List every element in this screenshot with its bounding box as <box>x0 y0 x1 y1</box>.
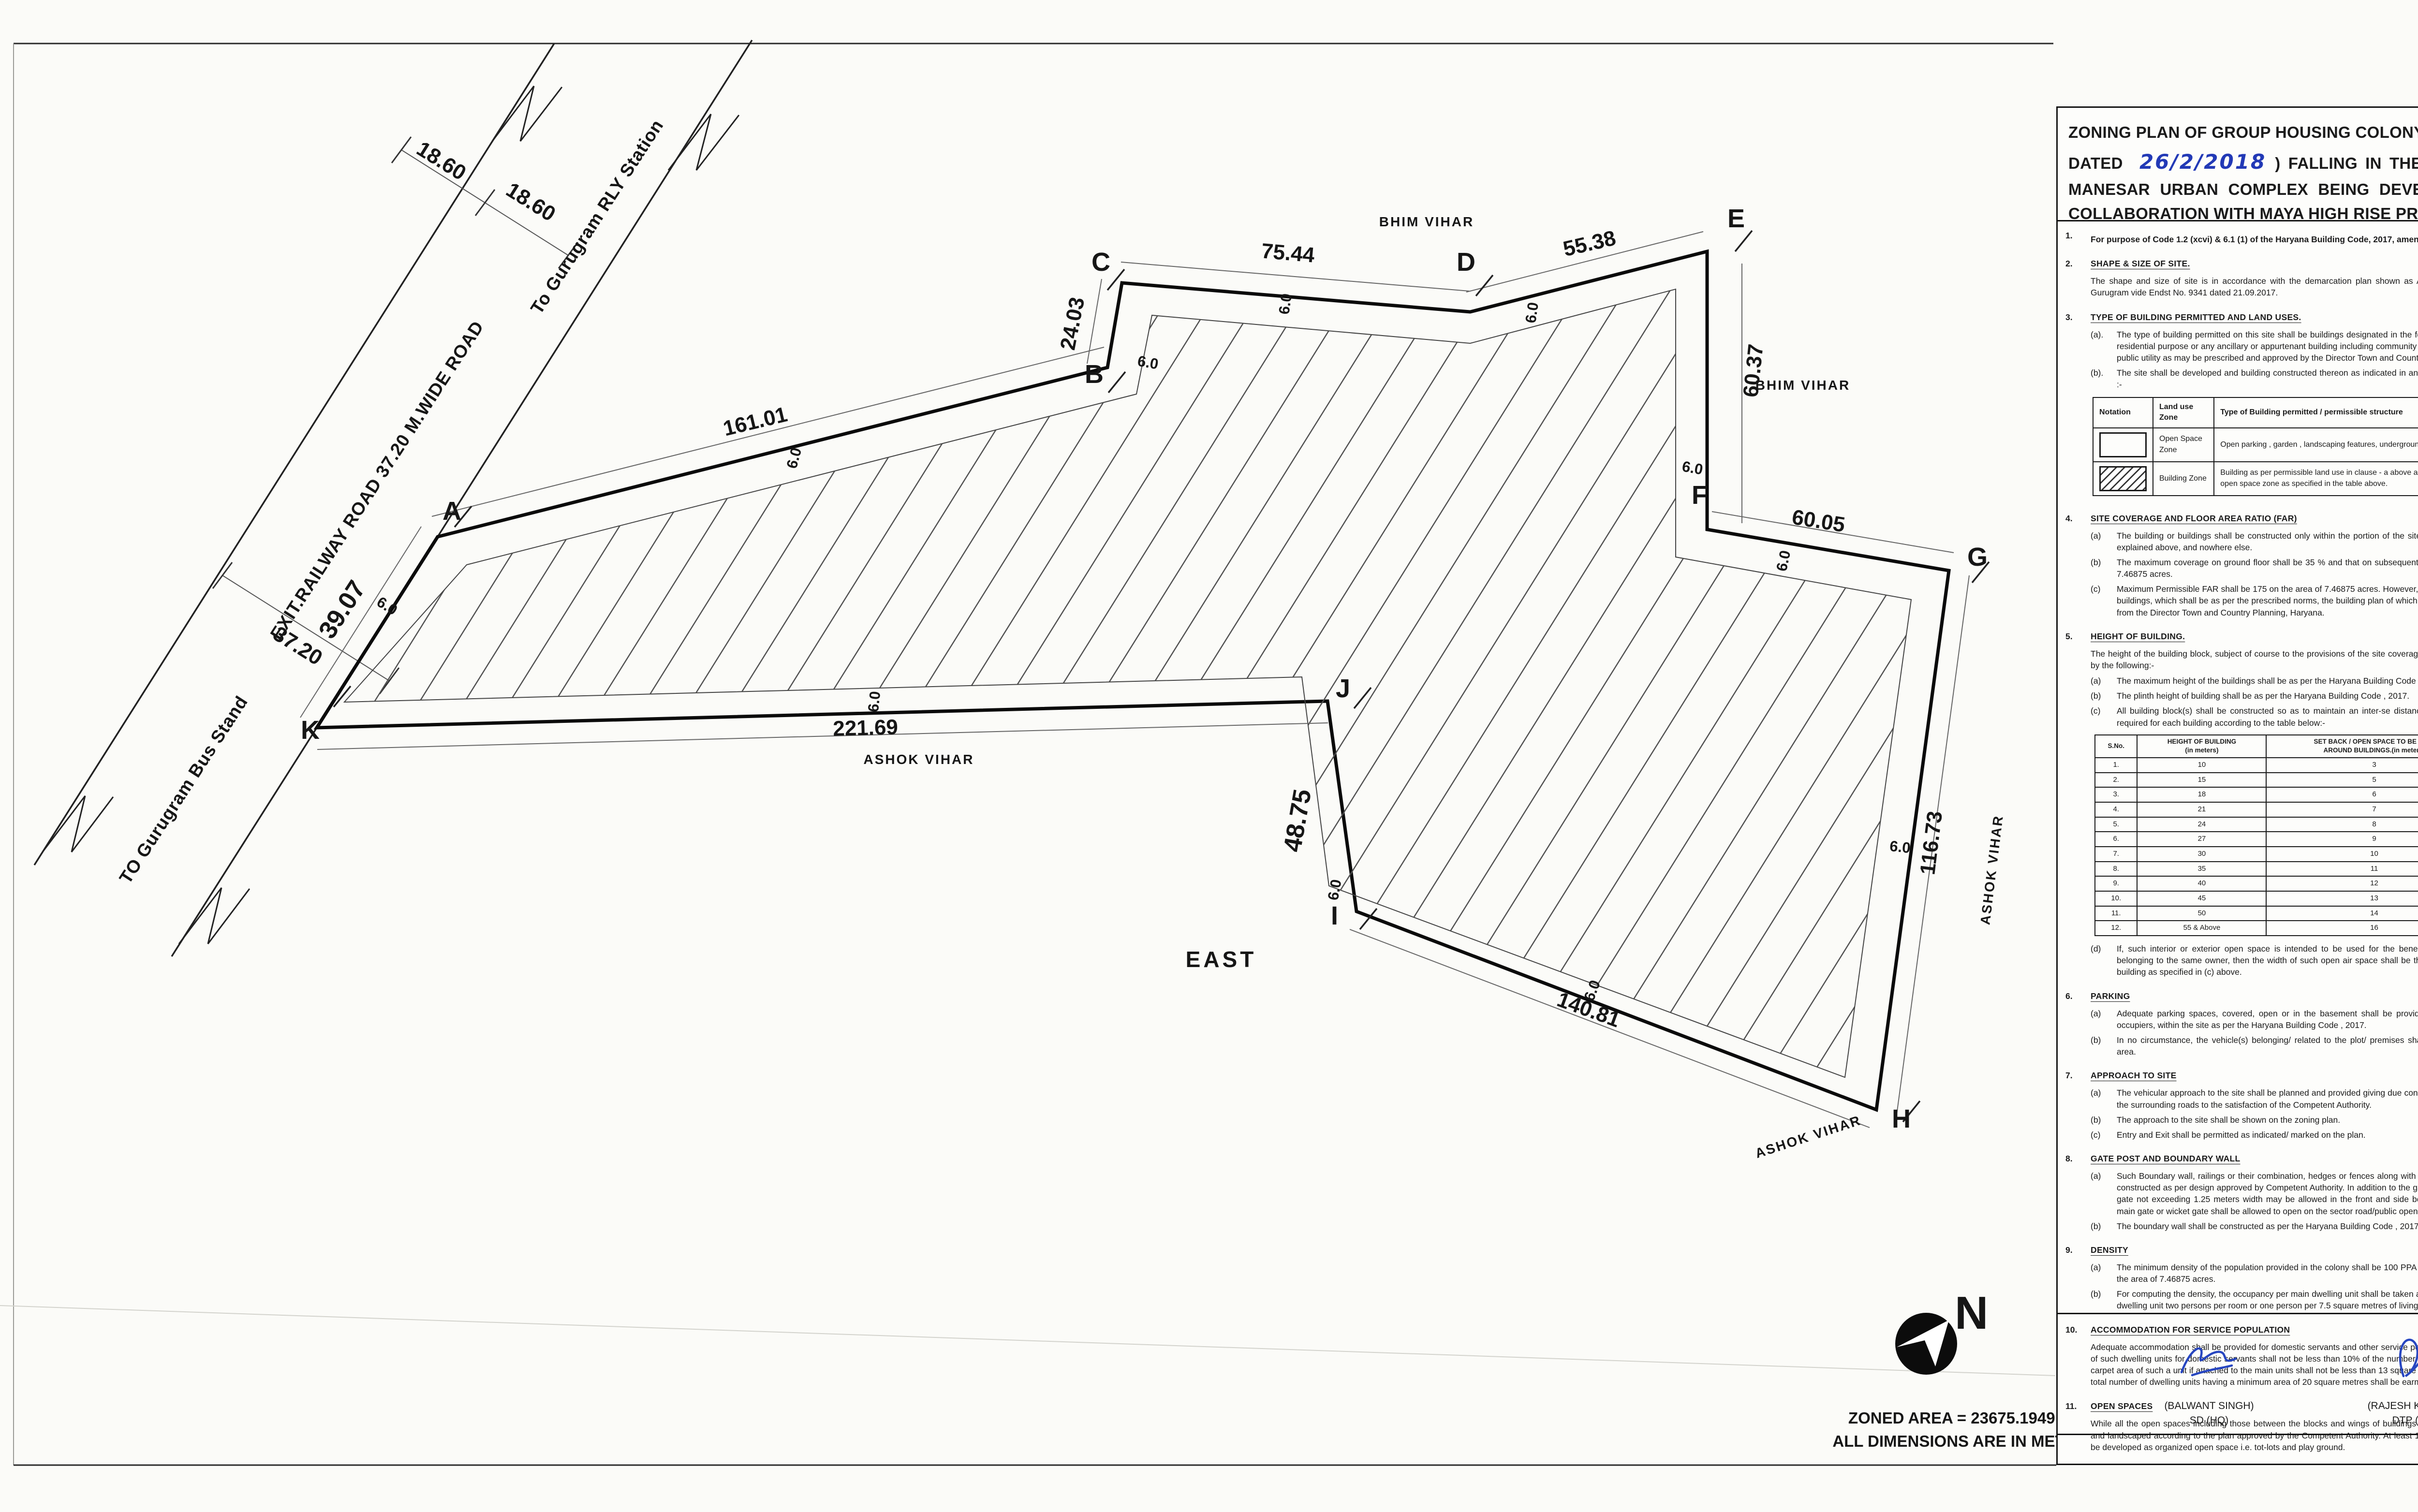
setback-label: 6.0 <box>1773 549 1794 573</box>
signatory-name: (RAJESH KAUSHIK) <box>2337 1400 2418 1412</box>
subitem-label: (b) <box>2091 557 2117 580</box>
subitem-label: (a) <box>2091 1262 2117 1285</box>
clause-number: 9. <box>2065 1244 2091 1315</box>
dim-gh: 116.73 <box>1916 810 1947 876</box>
table-cell: 9 <box>2266 832 2418 847</box>
clause-subitem: (a)Such Boundary wall, railings or their… <box>2091 1170 2418 1217</box>
table-cell: 1. <box>2095 758 2137 773</box>
table-row: 9.4012 <box>2095 876 2418 891</box>
table-header-cell: SET BACK / OPEN SPACE TO BE LEFT AROUND … <box>2266 735 2418 758</box>
subitem-text: The building or buildings shall be const… <box>2117 530 2418 553</box>
table-cell: 30 <box>2137 847 2266 862</box>
signatory-name: (BALWANT SINGH) <box>2132 1400 2286 1412</box>
tick <box>475 190 495 216</box>
subitem-text: The approach to the site shall be shown … <box>2117 1114 2418 1126</box>
table-cell: 27 <box>2137 832 2266 847</box>
setback-label: 6.0 <box>1889 837 1912 856</box>
clause-section: 5.HEIGHT OF BUILDING.The height of the b… <box>2065 631 2418 982</box>
clause-subitem: (a)Adequate parking spaces, covered, ope… <box>2091 1008 2418 1031</box>
clause-heading: DENSITY <box>2091 1244 2418 1256</box>
title-text: ZONING PLAN OF GROUP HOUSING COLONY FOR … <box>2068 123 2418 141</box>
vertex-j: J <box>1336 674 1350 703</box>
setback-label: 6.0 <box>374 593 400 619</box>
clause-subitem: (a).The type of building permitted on th… <box>2091 329 2418 364</box>
subitem-label: (c) <box>2091 705 2117 728</box>
area-label-bhim-vihar-right: BHIM VIHAR <box>1755 378 1850 393</box>
subitem-label: (b) <box>2091 1288 2117 1311</box>
clause-number: 7. <box>2065 1070 2091 1144</box>
clause-heading: APPROACH TO SITE <box>2091 1070 2418 1081</box>
clause-number: 2. <box>2065 258 2091 302</box>
table-cell: 15 <box>2137 773 2266 788</box>
table-cell: 24 <box>2137 817 2266 832</box>
clause-subitem: (b)The plinth height of building shall b… <box>2091 690 2418 702</box>
vertex-i: I <box>1331 901 1338 930</box>
type-cell: Building as per permissible land use in … <box>2214 462 2418 496</box>
vertex-d: D <box>1457 248 1475 277</box>
setback-label: 6.0 <box>1325 878 1345 902</box>
zone-cell: Building Zone <box>2153 462 2214 496</box>
land-use-table: NotationLand use ZoneType of Building pe… <box>2093 397 2418 496</box>
table-cell: 8. <box>2095 862 2137 877</box>
clause-section: 9.DENSITY(a)The minimum density of the p… <box>2065 1244 2418 1315</box>
clause-subitem: (b)The boundary wall shall be constructe… <box>2091 1220 2418 1232</box>
dim-cd: 75.44 <box>1260 239 1315 267</box>
subitem-text: Entry and Exit shall be permitted as ind… <box>2117 1129 2418 1141</box>
table-cell: 5 <box>2266 773 2418 788</box>
dim-fg: 60.05 <box>1790 505 1846 537</box>
vertex-c: C <box>1091 248 1110 277</box>
subitem-label: (b) <box>2091 1220 2117 1232</box>
clauses-column-left: 1.For purpose of Code 1.2 (xcvi) & 6.1 (… <box>2065 230 2418 1466</box>
subitem-label: (a) <box>2091 530 2117 553</box>
clause-body: SHAPE & SIZE OF SITE.The shape and size … <box>2091 258 2418 302</box>
table-row: 3.186 <box>2095 787 2418 802</box>
open-space-swatch <box>2099 432 2147 457</box>
road-label-to-bus-stand: TO Gurugram Bus Stand <box>116 692 252 887</box>
road-edge-left <box>34 44 554 865</box>
vertex-a: A <box>442 497 461 526</box>
site-plan: A B C D E F G H I J K 161.01 24.03 75.44… <box>0 0 2418 1512</box>
subitem-label: (c) <box>2091 1129 2117 1141</box>
road-break-icon <box>43 796 113 852</box>
table-header-cell: HEIGHT OF BUILDING (in meters) <box>2137 735 2266 758</box>
table-row: 8.3511 <box>2095 862 2418 877</box>
setback-label: 6.0 <box>1522 301 1542 324</box>
clause-section: 8.GATE POST AND BOUNDARY WALL(a)Such Bou… <box>2065 1153 2418 1235</box>
north-letter: N <box>1955 1287 1988 1339</box>
subitem-text: The maximum height of the buildings shal… <box>2117 675 2418 687</box>
subitem-label: (a) <box>2091 1008 2117 1031</box>
clause-subitem: (b)The maximum coverage on ground floor … <box>2091 557 2418 580</box>
tick <box>392 137 411 163</box>
clause-section: 7.APPROACH TO SITE(a)The vehicular appro… <box>2065 1070 2418 1144</box>
subitem-text: The vehicular approach to the site shall… <box>2117 1087 2418 1110</box>
clause-section: 1.For purpose of Code 1.2 (xcvi) & 6.1 (… <box>2065 230 2418 249</box>
clause-paragraph: For purpose of Code 1.2 (xcvi) & 6.1 (1)… <box>2091 234 2418 245</box>
notation-cell <box>2093 462 2153 496</box>
setback-label: 6.0 <box>1136 352 1160 373</box>
clause-number: 3. <box>2065 311 2091 504</box>
table-cell: 4. <box>2095 802 2137 817</box>
subitem-text: The type of building permitted on this s… <box>2117 329 2418 364</box>
clause-section: 4.SITE COVERAGE AND FLOOR AREA RATIO (FA… <box>2065 513 2418 622</box>
dim-jk: 221.69 <box>833 715 899 741</box>
table-cell: 50 <box>2137 906 2266 921</box>
clause-subitem: (a)The vehicular approach to the site sh… <box>2091 1087 2418 1110</box>
subitem-label: (d) <box>2091 943 2117 978</box>
subitem-text: The minimum density of the population pr… <box>2117 1262 2418 1285</box>
clause-body: PARKING(a)Adequate parking spaces, cover… <box>2091 990 2418 1061</box>
table-cell: 14 <box>2266 906 2418 921</box>
table-cell: 6 <box>2266 787 2418 802</box>
notation-cell <box>2093 428 2153 462</box>
vertex-e: E <box>1727 204 1745 233</box>
vertex-h: H <box>1892 1104 1911 1133</box>
clause-number: 5. <box>2065 631 2091 982</box>
table-cell: 13 <box>2266 891 2418 906</box>
clause-paragraph: The height of the building block, subjec… <box>2091 648 2418 671</box>
subitem-text: In no circumstance, the vehicle(s) belon… <box>2117 1034 2418 1057</box>
clause-number: 4. <box>2065 513 2091 622</box>
setback-label: 6.0 <box>1275 293 1295 316</box>
subitem-label: (c) <box>2091 583 2117 618</box>
clause-heading: TYPE OF BUILDING PERMITTED AND LAND USES… <box>2091 311 2418 323</box>
signature-stroke <box>2400 1340 2418 1376</box>
table-cell: 35 <box>2137 862 2266 877</box>
clause-heading: PARKING <box>2091 990 2418 1002</box>
dim-road-half-1: 18.60 <box>413 137 470 185</box>
clause-heading: SITE COVERAGE AND FLOOR AREA RATIO (FAR) <box>2091 513 2418 524</box>
table-cell: 12. <box>2095 921 2137 936</box>
signatory-role: DTP (HQ) <box>2337 1415 2418 1426</box>
subitem-text: Adequate parking spaces, covered, open o… <box>2117 1008 2418 1031</box>
subitem-text: The maximum coverage on ground floor sha… <box>2117 557 2418 580</box>
table-header-cell: Type of Building permitted / permissible… <box>2214 397 2418 427</box>
signature-stroke <box>2182 1349 2236 1375</box>
table-row: 4.217 <box>2095 802 2418 817</box>
dim-ka: 39.07 <box>313 575 371 644</box>
drawing-title: ZONING PLAN OF GROUP HOUSING COLONY FOR … <box>2058 108 2418 221</box>
table-cell: 6. <box>2095 832 2137 847</box>
clause-section: 3.TYPE OF BUILDING PERMITTED AND LAND US… <box>2065 311 2418 504</box>
clause-number: 6. <box>2065 990 2091 1061</box>
clause-subitem: (c)All building block(s) shall be constr… <box>2091 705 2418 728</box>
dim-bc: 24.03 <box>1056 295 1089 352</box>
table-cell: 3. <box>2095 787 2137 802</box>
table-row: 2.155 <box>2095 773 2418 788</box>
signature-strip: (BALWANT SINGH)SD (HQ)(RAJESH KAUSHIK)DT… <box>2058 1313 2418 1435</box>
table-header-cell: Notation <box>2093 397 2153 427</box>
clause-number: 1. <box>2065 230 2091 249</box>
licence-date-handwritten: 26/2/2018 <box>2131 150 2275 174</box>
subitem-text: For computing the density, the occupancy… <box>2117 1288 2418 1311</box>
building-zone-swatch <box>2099 466 2147 491</box>
table-cell: 8 <box>2266 817 2418 832</box>
table-cell: 10 <box>2266 847 2418 862</box>
table-header-row: NotationLand use ZoneType of Building pe… <box>2093 397 2418 427</box>
table-cell: 2. <box>2095 773 2137 788</box>
subitem-text: If, such interior or exterior open space… <box>2117 943 2418 978</box>
east-label: EAST <box>1186 947 1257 972</box>
clause-subitem: (b)For computing the density, the occupa… <box>2091 1288 2418 1311</box>
table-cell: 10. <box>2095 891 2137 906</box>
area-label-ashok-vihar-east: ASHOK VIHAR <box>1977 814 2006 925</box>
signature-scribble <box>2359 1318 2418 1399</box>
table-header-cell: Land use Zone <box>2153 397 2214 427</box>
table-cell: 18 <box>2137 787 2266 802</box>
subitem-label: (a) <box>2091 1170 2117 1217</box>
subitem-text: Such Boundary wall, railings or their co… <box>2117 1170 2418 1217</box>
table-cell: 45 <box>2137 891 2266 906</box>
table-cell: 7 <box>2266 802 2418 817</box>
road-break-icon <box>179 888 250 944</box>
zone-cell: Open Space Zone <box>2153 428 2214 462</box>
subitem-label: (b). <box>2091 367 2117 390</box>
clause-subitem: (d)If, such interior or exterior open sp… <box>2091 943 2418 978</box>
tick <box>1735 231 1752 251</box>
table-cell: 21 <box>2137 802 2266 817</box>
clause-subitem: (a)The minimum density of the population… <box>2091 1262 2418 1285</box>
vertex-f: F <box>1692 481 1708 510</box>
signatory: (BALWANT SINGH)SD (HQ) <box>2132 1318 2286 1434</box>
table-header-row: S.No.HEIGHT OF BUILDING (in meters)SET B… <box>2095 735 2418 758</box>
table-cell: 7. <box>2095 847 2137 862</box>
clause-body: TYPE OF BUILDING PERMITTED AND LAND USES… <box>2091 311 2418 504</box>
table-row: 11.5014 <box>2095 906 2418 921</box>
subitem-text: The boundary wall shall be constructed a… <box>2117 1220 2418 1232</box>
clause-section: 2.SHAPE & SIZE OF SITE.The shape and siz… <box>2065 258 2418 302</box>
setback-label: 6.0 <box>865 690 884 713</box>
clause-body: GATE POST AND BOUNDARY WALL(a)Such Bound… <box>2091 1153 2418 1235</box>
fold-crease <box>0 1306 2055 1376</box>
building-zone-hatch <box>344 289 1911 1077</box>
clause-body: For purpose of Code 1.2 (xcvi) & 6.1 (1)… <box>2091 230 2418 249</box>
subitem-label: (a). <box>2091 329 2117 364</box>
dim-ij: 48.75 <box>1278 787 1317 854</box>
table-cell: 9. <box>2095 876 2137 891</box>
clause-heading: GATE POST AND BOUNDARY WALL <box>2091 1153 2418 1164</box>
signatory: (RAJESH KAUSHIK)DTP (HQ) <box>2337 1318 2418 1434</box>
clause-body: APPROACH TO SITE(a)The vehicular approac… <box>2091 1070 2418 1144</box>
road-break-icon <box>668 114 739 170</box>
clause-subitem: (b)The approach to the site shall be sho… <box>2091 1114 2418 1126</box>
dim-line-bc <box>1087 279 1102 364</box>
table-cell: 40 <box>2137 876 2266 891</box>
vertex-k: K <box>301 716 320 745</box>
setback-label: 6.0 <box>1681 458 1705 478</box>
road-edge-right-upper <box>438 40 752 537</box>
table-cell: 5. <box>2095 817 2137 832</box>
vertex-b: B <box>1085 360 1104 389</box>
subitem-text: The plinth height of building shall be a… <box>2117 690 2418 702</box>
subitem-text: Maximum Permissible FAR shall be 175 on … <box>2117 583 2418 618</box>
clause-heading: HEIGHT OF BUILDING. <box>2091 631 2418 642</box>
clause-subitem: (a)The building or buildings shall be co… <box>2091 530 2418 553</box>
title-block: ZONING PLAN OF GROUP HOUSING COLONY FOR … <box>2056 106 2418 1465</box>
subitem-label: (b) <box>2091 1034 2117 1057</box>
area-label-bhim-vihar-top: BHIM VIHAR <box>1379 214 1474 229</box>
clause-body: DENSITY(a)The minimum density of the pop… <box>2091 1244 2418 1315</box>
signatory-role: SD (HQ) <box>2132 1415 2286 1426</box>
area-label-ashok-vihar-bottom: ASHOK VIHAR <box>863 752 974 767</box>
table-row: 7.3010 <box>2095 847 2418 862</box>
table-row: 10.4513 <box>2095 891 2418 906</box>
clause-body: HEIGHT OF BUILDING.The height of the bui… <box>2091 631 2418 982</box>
subitem-text: All building block(s) shall be construct… <box>2117 705 2418 728</box>
table-cell: 16 <box>2266 921 2418 936</box>
table-cell: 12 <box>2266 876 2418 891</box>
road-break-icon <box>492 86 562 141</box>
clause-subitem: (b)In no circumstance, the vehicle(s) be… <box>2091 1034 2418 1057</box>
dim-line-jk <box>317 723 1328 749</box>
height-setback-table: S.No.HEIGHT OF BUILDING (in meters)SET B… <box>2094 734 2418 937</box>
table-row: Open Space ZoneOpen parking , garden , l… <box>2093 428 2418 462</box>
table-row: 5.248 <box>2095 817 2418 832</box>
type-cell: Open parking , garden , landscaping feat… <box>2214 428 2418 462</box>
table-row: 6.279 <box>2095 832 2418 847</box>
subitem-label: (a) <box>2091 1087 2117 1110</box>
table-cell: 11. <box>2095 906 2137 921</box>
table-cell: 55 & Above <box>2137 921 2266 936</box>
table-cell: 11 <box>2266 862 2418 877</box>
vertex-g: G <box>1967 543 1988 572</box>
tick <box>1108 372 1125 393</box>
clause-subitem: (b).The site shall be developed and buil… <box>2091 367 2418 390</box>
table-cell: 3 <box>2266 758 2418 773</box>
signature-scribble <box>2153 1318 2265 1399</box>
clause-section: 6.PARKING(a)Adequate parking spaces, cov… <box>2065 990 2418 1061</box>
clause-paragraph: The shape and size of site is in accorda… <box>2091 275 2418 298</box>
subitem-text: The site shall be developed and building… <box>2117 367 2418 390</box>
area-label-ashok-vihar-se: ASHOK VIHAR <box>1753 1113 1863 1161</box>
clause-subitem: (c)Maximum Permissible FAR shall be 175 … <box>2091 583 2418 618</box>
table-cell: 10 <box>2137 758 2266 773</box>
clause-body: SITE COVERAGE AND FLOOR AREA RATIO (FAR)… <box>2091 513 2418 622</box>
clause-subitem: (a)The maximum height of the buildings s… <box>2091 675 2418 687</box>
subitem-label: (b) <box>2091 1114 2117 1126</box>
table-row: 1.103 <box>2095 758 2418 773</box>
table-header-cell: S.No. <box>2095 735 2137 758</box>
table-row: 12.55 & Above16 <box>2095 921 2418 936</box>
subitem-label: (b) <box>2091 690 2117 702</box>
table-row: Building ZoneBuilding as per permissible… <box>2093 462 2418 496</box>
north-arrow: N <box>1895 1287 1988 1375</box>
clause-heading: SHAPE & SIZE OF SITE. <box>2091 258 2418 269</box>
clause-subitem: (c)Entry and Exit shall be permitted as … <box>2091 1129 2418 1141</box>
clause-number: 8. <box>2065 1153 2091 1235</box>
subitem-label: (a) <box>2091 675 2117 687</box>
